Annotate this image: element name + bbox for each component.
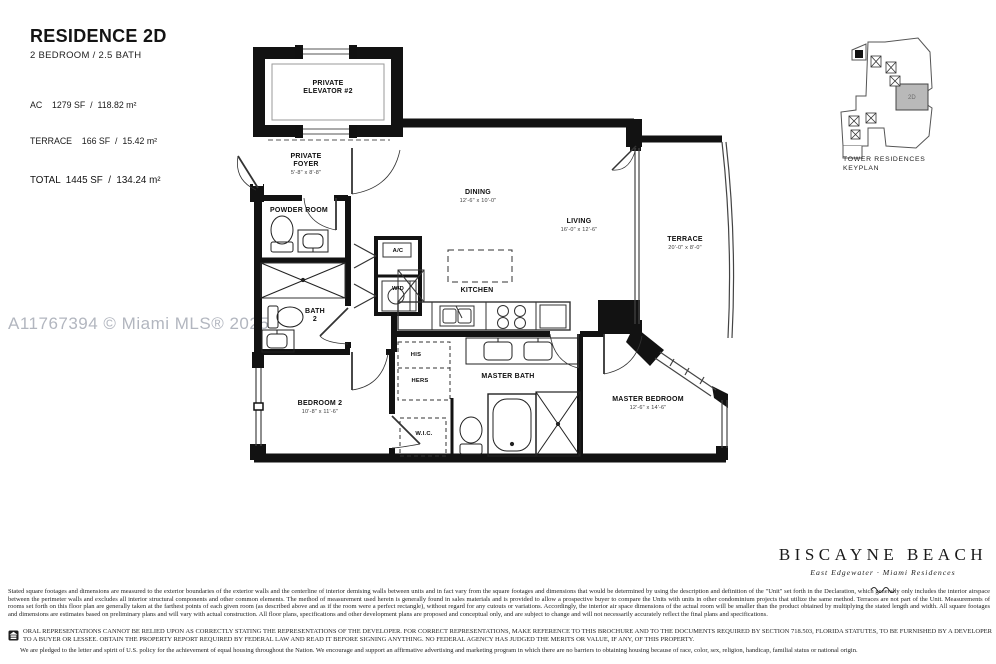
toilet-icon	[268, 306, 303, 328]
room-label-elevator: PRIVATE ELEVATOR #2	[303, 80, 352, 96]
floor-plan-sheet: RESIDENCE 2D 2 BEDROOM / 2.5 BATH AC 127…	[0, 0, 996, 664]
room-label-foyer: PRIVATE FOYER 5'-8" x 8'-8"	[290, 153, 321, 176]
bathtub-icon	[488, 394, 536, 456]
cooktop-icon	[498, 306, 526, 329]
legal-disclaimer: Stated square footages and dimensions ar…	[8, 588, 990, 618]
room-label-bedroom2: BEDROOM 2 10'-8" x 11'-6"	[298, 400, 343, 415]
room-label-terrace: TERRACE 20'-0" x 8'-0"	[667, 236, 703, 251]
master-bath-fixtures	[460, 338, 580, 456]
kitchen-sink-icon	[440, 306, 474, 326]
double-vanity-icon	[466, 338, 578, 364]
oral-representations-block: ORAL REPRESENTATIONS CANNOT BE RELIED UP…	[8, 628, 992, 646]
shower-icon	[536, 392, 580, 456]
room-label-ac: A/C	[393, 248, 404, 254]
room-label-bath2: BATH 2	[305, 308, 325, 324]
fair-housing-statement: We are pledged to the letter and spirit …	[20, 647, 992, 654]
room-label-kitchen: KITCHEN	[461, 287, 494, 295]
sink-icon	[262, 330, 294, 352]
brand-name: BISCAYNE BEACH	[778, 545, 988, 565]
room-label-wd: W/D	[392, 286, 404, 292]
toilet-icon	[460, 417, 482, 454]
oral-representations-text: ORAL REPRESENTATIONS CANNOT BE RELIED UP…	[23, 628, 992, 646]
his-hers-closet	[398, 342, 450, 400]
shower-icon	[261, 263, 345, 298]
closets	[398, 342, 450, 456]
room-label-powder: POWDER ROOM	[270, 207, 328, 215]
room-label-his: HIS	[411, 352, 421, 358]
room-label-wic: W.I.C.	[415, 431, 432, 437]
room-label-hers: HERS	[411, 378, 428, 384]
island-outline	[448, 250, 512, 282]
wic-closet	[400, 418, 446, 456]
powder-room-fixtures	[271, 216, 328, 252]
room-label-living: LIVING 16'-0" x 12'-6"	[561, 218, 598, 233]
room-label-master-bedroom: MASTER BEDROOM 12'-6" x 14'-6"	[612, 396, 684, 411]
room-label-dining: DINING 12'-6" x 10'-0"	[460, 189, 497, 204]
brand-tagline: East Edgewater · Miami Residences	[778, 568, 988, 577]
toilet-icon	[271, 216, 293, 252]
bath2-fixtures	[261, 263, 345, 352]
sink-icon	[298, 230, 328, 252]
equal-housing-icon	[8, 628, 19, 646]
room-label-master-bath: MASTER BATH	[481, 373, 534, 381]
fridge-icon	[540, 305, 566, 328]
